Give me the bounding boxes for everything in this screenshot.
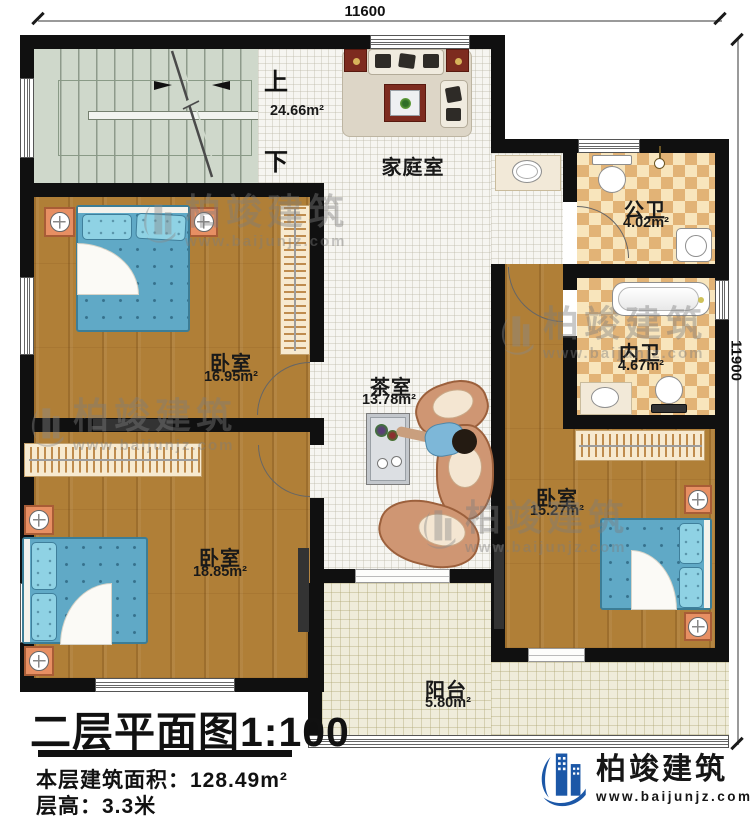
lamp-symbol (29, 651, 49, 671)
dimension-line-top (38, 20, 722, 22)
wall-bedroom1-right (310, 197, 324, 362)
balcony-door-sill (528, 648, 585, 662)
pillow (82, 214, 132, 240)
bathtub-basin (618, 287, 699, 311)
sofa-cushion (423, 54, 439, 68)
window (20, 78, 34, 158)
bed-sheet (631, 550, 677, 610)
wall-bedroom3-top (563, 415, 729, 429)
side-table (446, 49, 469, 72)
pillow (679, 567, 703, 608)
nightstand (684, 485, 712, 514)
lamp-symbol (29, 510, 49, 530)
bathtub-drain (698, 297, 704, 303)
stair-down-label: 下 (264, 142, 288, 177)
plan-title: 二层平面图1:100 (30, 698, 350, 758)
wall-innerbath-left-upper (563, 278, 577, 290)
pillow (135, 213, 186, 242)
window (95, 678, 235, 692)
title-underline (38, 750, 292, 757)
tv-symbol (93, 419, 173, 431)
tea-table (366, 413, 410, 485)
nightstand (189, 207, 218, 237)
stair-direction-arrow (34, 49, 258, 183)
toilet-symbol (651, 404, 687, 413)
lamp-symbol (50, 212, 70, 232)
toilet-symbol (592, 155, 632, 165)
sofa-cushion (445, 86, 462, 103)
wardrobe (575, 430, 705, 461)
wall-bedroom2-right-upper (310, 418, 324, 445)
dimension-top-value: 11600 (335, 3, 395, 20)
balcony-floor (491, 662, 729, 735)
balcony-area: 5.80m² (425, 695, 471, 711)
floor-area-value: 128.49m² (190, 769, 288, 792)
dimension-right-value: 11900 (728, 331, 745, 391)
company-logo-icon (536, 750, 588, 808)
wall-notch-vertical (491, 35, 505, 153)
headboard (704, 520, 710, 608)
window (370, 35, 470, 49)
plant (400, 98, 411, 109)
wall-stair-bottom (20, 183, 324, 197)
nightstand (24, 505, 54, 535)
tea-room-area: 13.78m² (362, 392, 416, 408)
lamp-symbol (688, 490, 708, 510)
pillow (31, 593, 57, 641)
tv-symbol (298, 548, 309, 632)
bedroom-right-area: 15.27m² (530, 503, 584, 519)
family-room-name: 家庭室 (382, 151, 445, 180)
window (715, 280, 729, 320)
tv-symbol (494, 545, 504, 629)
pillow (31, 542, 57, 590)
wall-bath-divider (563, 264, 729, 278)
sofa (368, 49, 444, 75)
nightstand (24, 646, 54, 676)
floor-plan: 11600 11900 (0, 0, 750, 817)
family-room-area: 24.66m² (270, 103, 324, 119)
bathtub-symbol (612, 282, 710, 316)
teacup (391, 456, 402, 467)
sink-symbol (512, 160, 542, 183)
bed-symbol (22, 537, 148, 644)
sofa-cushion (446, 108, 461, 121)
window (578, 139, 640, 153)
wall-right (715, 139, 729, 662)
wall-bedroom3-bottom-right (585, 648, 729, 662)
wall-bedroom3-bottom-left (491, 648, 528, 662)
headboard (78, 207, 188, 213)
headboard (24, 539, 30, 642)
dimension-tick (713, 12, 726, 25)
floor-height-value: 3.3米 (102, 795, 156, 817)
light-pull-knob (654, 158, 665, 169)
balcony-door-sill (355, 569, 450, 583)
bed-symbol (76, 205, 190, 332)
sofa-cushion (375, 54, 391, 68)
nightstand (44, 207, 75, 237)
floor-height-line: 层高：3.3米 (36, 790, 156, 817)
wall-publicbath-left (563, 153, 577, 202)
bed-sheet (60, 583, 112, 645)
toilet-symbol (655, 376, 683, 404)
company-logo: 柏竣建筑 www.baijunjz.com (536, 750, 750, 808)
sink-symbol (591, 387, 619, 408)
bed-sheet (77, 243, 139, 295)
company-website: www.baijunjz.com (596, 789, 750, 804)
window (20, 277, 34, 355)
public-bath-area: 4.02m² (623, 215, 669, 231)
armchair (440, 80, 468, 128)
person-head (452, 429, 477, 454)
stair-up-label: 上 (264, 62, 288, 97)
stair-room-floor (34, 49, 258, 183)
toilet-symbol (598, 166, 626, 193)
floor-height-label: 层高： (36, 795, 102, 817)
pillow (679, 523, 703, 564)
lamp-symbol (194, 212, 214, 232)
inner-bath-area: 4.67m² (618, 358, 664, 374)
wall-innerbath-left-lower (563, 336, 577, 415)
lamp-symbol (688, 617, 708, 637)
balcony-railing (308, 735, 729, 748)
table-dot (353, 58, 360, 65)
wardrobe (24, 443, 202, 477)
wall-tea-bottom-left (324, 569, 355, 583)
coffee-table (384, 84, 426, 122)
bedroom-bottom-left-area: 18.85m² (193, 564, 247, 580)
washer-drum (685, 235, 707, 257)
wall-tea-bottom-right (450, 569, 491, 583)
washing-machine-symbol (676, 228, 712, 262)
nightstand (684, 612, 712, 641)
floor-area-label: 本层建筑面积： (36, 769, 190, 792)
wardrobe (280, 205, 310, 355)
sofa-cushion (398, 53, 416, 69)
teacup (377, 458, 388, 469)
side-table (344, 49, 367, 72)
company-name: 柏竣建筑 (596, 755, 750, 785)
dimension-line-right (737, 40, 739, 745)
bed-symbol (600, 518, 712, 610)
table-dot (455, 58, 462, 65)
bedroom-top-left-area: 16.95m² (204, 369, 258, 385)
dimension-tick (31, 12, 44, 25)
